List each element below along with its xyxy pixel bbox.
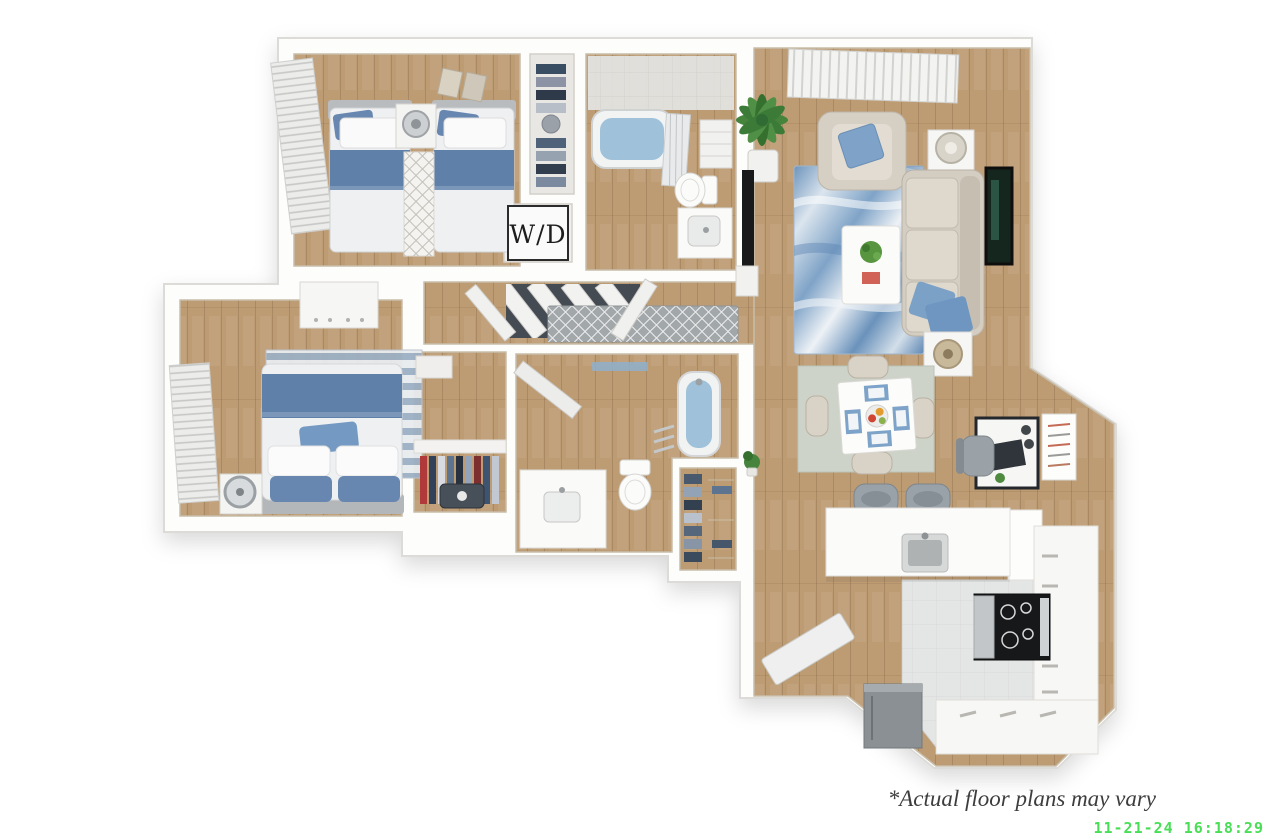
sink xyxy=(544,492,580,522)
tv-stand xyxy=(736,266,758,296)
runner-rug-bedroom-1 xyxy=(404,152,434,256)
blue-blanket xyxy=(262,374,402,418)
dresser xyxy=(300,282,378,328)
dining-table xyxy=(838,378,917,455)
hat-box xyxy=(542,115,560,133)
oven-handle xyxy=(1040,598,1049,656)
dining-chair-bottom xyxy=(852,452,892,474)
seat-cushion xyxy=(906,230,958,280)
table-plant xyxy=(860,241,882,263)
dining-chair-top xyxy=(848,356,888,378)
white-pillow xyxy=(444,118,506,148)
living-window-blinds xyxy=(787,49,959,103)
white-pillow-right xyxy=(336,446,398,476)
floor-plan-screenshot: W/D xyxy=(0,0,1280,840)
ceiling-light xyxy=(592,362,648,371)
shower-tile-wall xyxy=(588,56,734,110)
hall-runner-rug xyxy=(548,306,738,342)
blue-blanket xyxy=(434,150,514,190)
faucet xyxy=(703,227,709,233)
kitchen-island xyxy=(826,508,1010,582)
tv xyxy=(742,170,754,266)
toilet-1 xyxy=(675,173,717,207)
lamp-top xyxy=(411,119,421,129)
floor-plan-render: W/D xyxy=(0,0,1280,840)
desk-plant xyxy=(995,473,1005,483)
vanity-2 xyxy=(520,470,606,548)
shoes xyxy=(712,540,732,548)
toilet-tank xyxy=(620,460,650,475)
closet-2-shelf xyxy=(414,440,506,453)
laundry-closet: W/D xyxy=(508,206,568,260)
toilet-2 xyxy=(619,460,651,510)
office-chair xyxy=(956,436,994,476)
dining-chair-left xyxy=(806,396,828,436)
lamp-top xyxy=(236,488,244,496)
storage-box xyxy=(416,356,452,378)
queen-bed xyxy=(260,364,404,514)
coffee-table xyxy=(842,226,900,304)
blanket-fold xyxy=(434,186,514,190)
range-stove xyxy=(974,594,1050,660)
disclaimer-text: *Actual floor plans may vary xyxy=(888,786,1157,811)
blanket-fold xyxy=(262,412,402,417)
blue-pillow-right xyxy=(338,476,400,502)
white-pillow-left xyxy=(268,446,330,476)
island-faucet xyxy=(922,533,929,540)
table-books xyxy=(862,272,880,284)
bottom-cabinets xyxy=(936,700,1098,754)
desk-wall-poster xyxy=(1042,414,1076,480)
bathtub-1 xyxy=(592,110,672,168)
suitcase-logo xyxy=(457,491,467,501)
bath-water xyxy=(686,380,712,448)
toilet-bowl xyxy=(619,474,651,510)
blue-pillow-left xyxy=(270,476,332,502)
armchair xyxy=(818,112,906,190)
toilet-bowl xyxy=(675,173,705,207)
shoes xyxy=(712,486,732,494)
washer-dryer-label: W/D xyxy=(509,220,566,249)
linen-shelf xyxy=(700,120,732,168)
living-wall-art xyxy=(986,168,1012,264)
sofa xyxy=(902,170,984,341)
twin-bed-right xyxy=(432,100,516,252)
refrigerator xyxy=(864,684,922,748)
dining-area xyxy=(798,356,934,474)
bathtub-2 xyxy=(678,372,720,456)
white-pillow xyxy=(340,118,402,148)
range-side-panel xyxy=(974,596,994,658)
bath-water xyxy=(600,118,664,160)
blanket-fold xyxy=(330,186,410,190)
blue-blanket xyxy=(330,150,410,190)
seat-cushion xyxy=(906,178,958,228)
vanity-1 xyxy=(678,208,732,258)
faucet xyxy=(559,487,565,493)
tub-faucet xyxy=(696,379,703,386)
camera-timestamp: 11-21-24 16:18:29 xyxy=(1093,819,1264,837)
